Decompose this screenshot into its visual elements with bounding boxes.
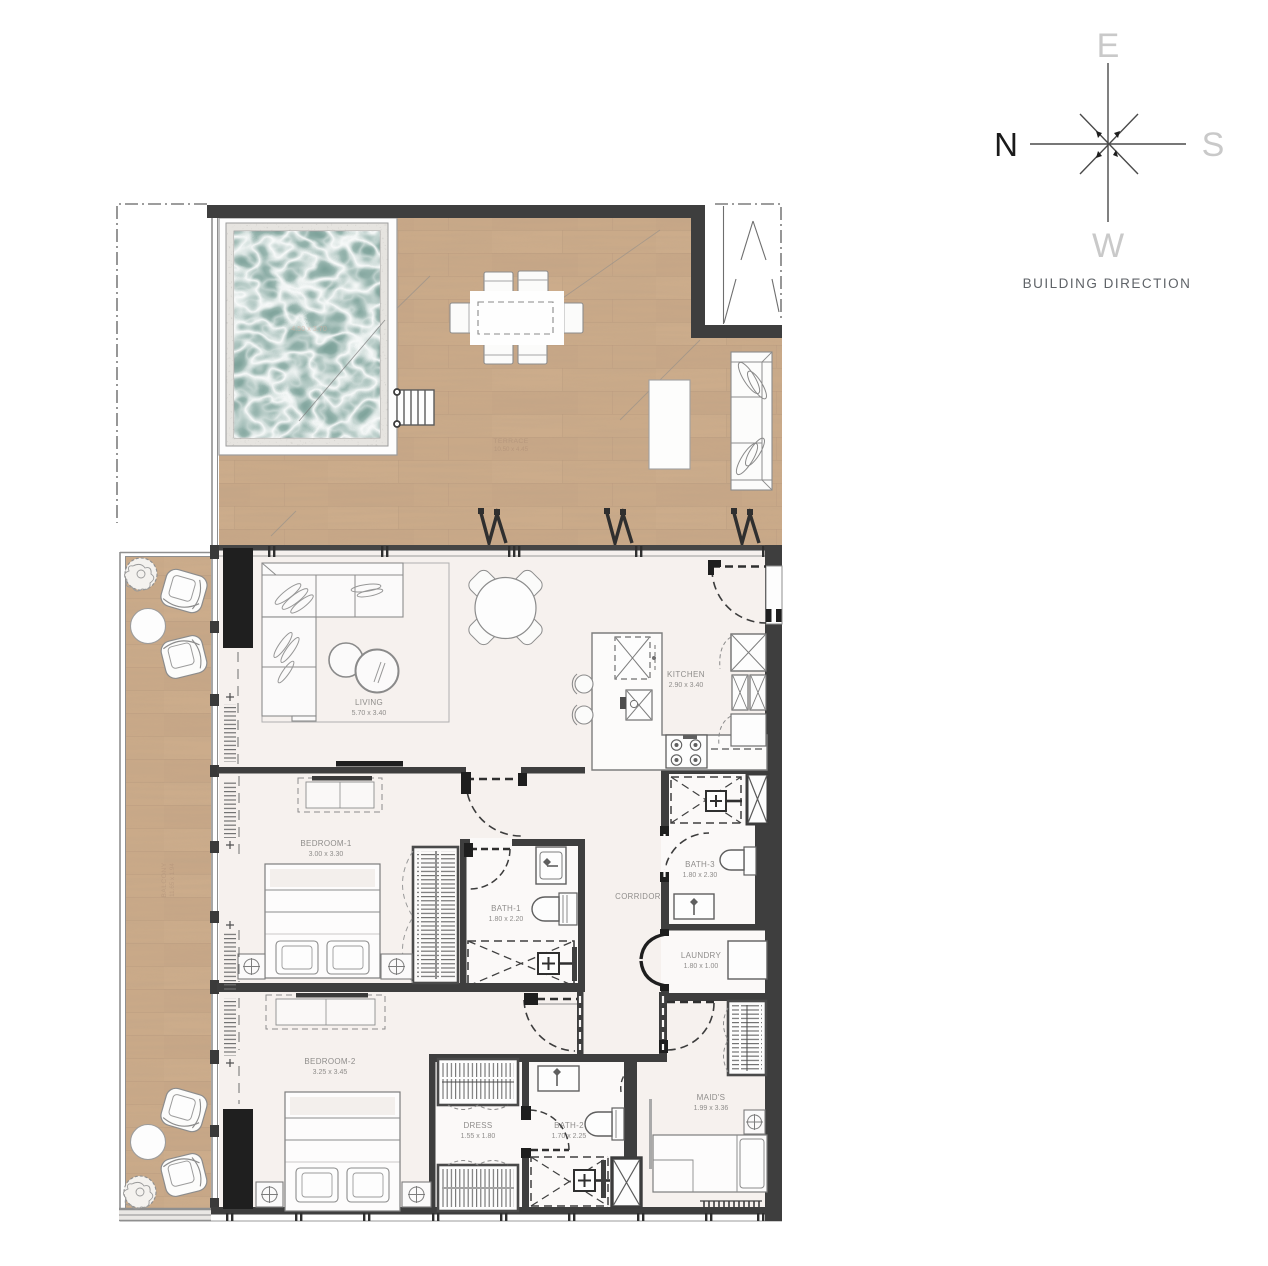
svg-text:TERRACE: TERRACE: [493, 438, 528, 445]
svg-text:5.70 x 3.40: 5.70 x 3.40: [352, 710, 387, 717]
svg-text:10.50 x 4.45: 10.50 x 4.45: [494, 446, 529, 453]
svg-text:3.25 x 3.45: 3.25 x 3.45: [313, 1069, 348, 1076]
svg-text:MAID'S: MAID'S: [697, 1093, 726, 1102]
svg-text:1.70 x 2.25: 1.70 x 2.25: [552, 1133, 587, 1140]
svg-text:1.55 x 1.80: 1.55 x 1.80: [461, 1133, 496, 1140]
svg-text:S: S: [1202, 126, 1225, 164]
svg-text:4.50 x 3.70: 4.50 x 3.70: [291, 324, 327, 333]
svg-text:LAUNDRY: LAUNDRY: [681, 951, 722, 960]
svg-text:BUILDING DIRECTION: BUILDING DIRECTION: [1023, 276, 1192, 291]
svg-text:1.80 x 2.30: 1.80 x 2.30: [683, 872, 718, 879]
svg-text:BEDROOM-2: BEDROOM-2: [304, 1057, 355, 1066]
svg-text:W: W: [1092, 227, 1124, 265]
svg-text:E: E: [1097, 27, 1120, 65]
svg-text:LIVING: LIVING: [355, 698, 383, 707]
svg-text:11.65 x 1.94: 11.65 x 1.94: [169, 863, 176, 897]
svg-text:3.00 x 3.30: 3.00 x 3.30: [309, 851, 344, 858]
svg-text:DRESS: DRESS: [463, 1121, 492, 1130]
svg-text:CORRIDOR: CORRIDOR: [615, 892, 661, 901]
svg-text:1.99 x 3.36: 1.99 x 3.36: [694, 1105, 729, 1112]
svg-text:BATH-2: BATH-2: [554, 1121, 584, 1130]
svg-text:1.80 x 2.20: 1.80 x 2.20: [489, 916, 524, 923]
svg-text:KITCHEN: KITCHEN: [667, 670, 705, 679]
svg-text:N: N: [994, 126, 1018, 163]
svg-text:BATH-1: BATH-1: [491, 904, 521, 913]
svg-text:BATH-3: BATH-3: [685, 860, 715, 869]
svg-text:BEDROOM-1: BEDROOM-1: [300, 839, 351, 848]
svg-text:1.80 x 1.00: 1.80 x 1.00: [684, 963, 719, 970]
svg-text:BALCONY: BALCONY: [161, 862, 168, 897]
svg-text:2.90 x 3.40: 2.90 x 3.40: [669, 682, 704, 689]
